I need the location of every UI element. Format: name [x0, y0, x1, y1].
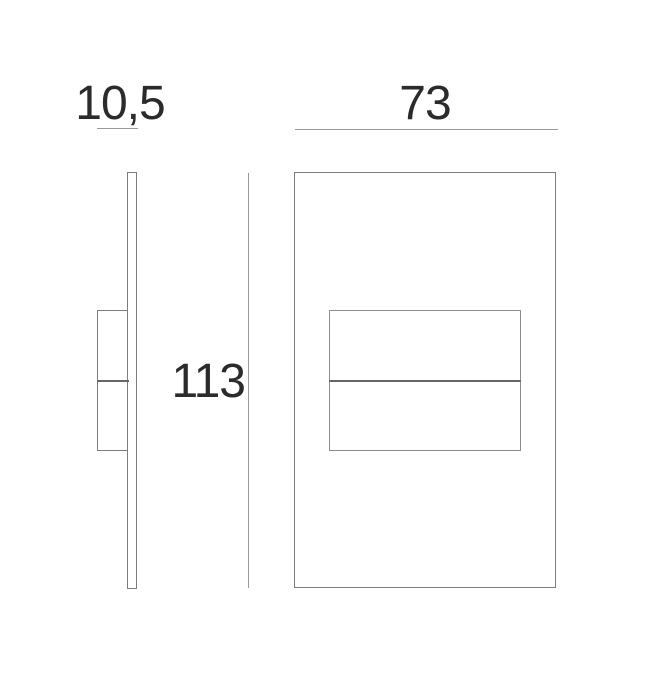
height-dimension-label: 113 [150, 358, 245, 406]
height-dimension-line [248, 173, 249, 588]
depth-dimension-label: 10,5 [60, 80, 180, 128]
dimension-drawing: 10,5 73 113 [0, 0, 650, 677]
front-view-window-divider-line [329, 380, 521, 382]
width-dimension-label: 73 [294, 80, 556, 128]
side-view-rear-box-divider-line [97, 380, 129, 382]
depth-dimension-line [97, 128, 138, 129]
width-dimension-line [295, 129, 558, 130]
